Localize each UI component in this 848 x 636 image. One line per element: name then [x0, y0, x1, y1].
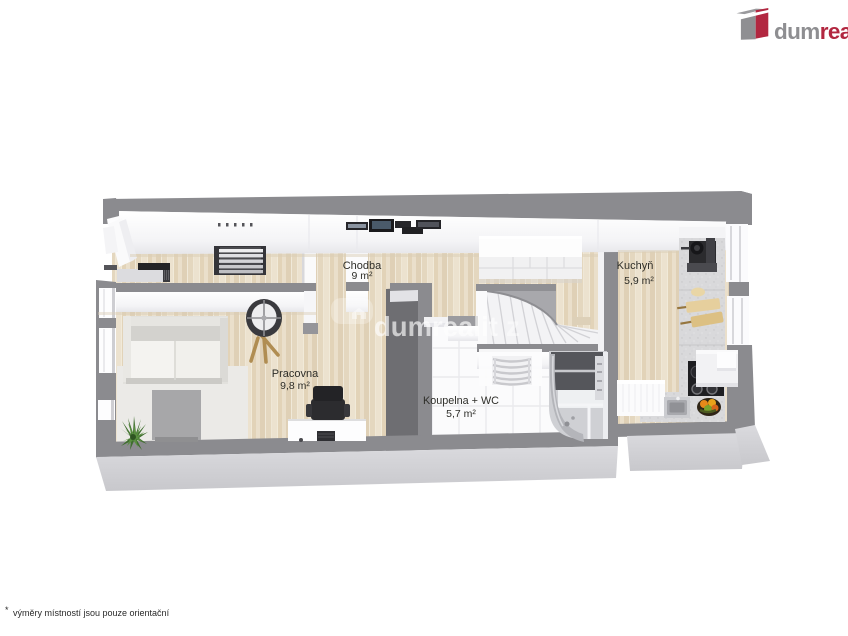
- svg-text:výměry místností jsou pouze or: výměry místností jsou pouze orientační: [13, 608, 170, 618]
- svg-text:9 m²: 9 m²: [352, 270, 374, 282]
- svg-text:Pracovna: Pracovna: [272, 368, 319, 380]
- svg-text:Kuchyň: Kuchyň: [617, 260, 654, 272]
- svg-text:5,7 m²: 5,7 m²: [446, 408, 476, 420]
- svg-text:9,8 m²: 9,8 m²: [280, 380, 310, 392]
- svg-text:dumrealit: dumrealit: [774, 19, 848, 44]
- svg-text:dumrealit: dumrealit: [374, 311, 498, 342]
- svg-text:*: *: [5, 605, 9, 615]
- svg-text:z: z: [506, 311, 520, 342]
- svg-text:5,9 m²: 5,9 m²: [624, 275, 654, 287]
- svg-text:Koupelna + WC: Koupelna + WC: [423, 395, 499, 407]
